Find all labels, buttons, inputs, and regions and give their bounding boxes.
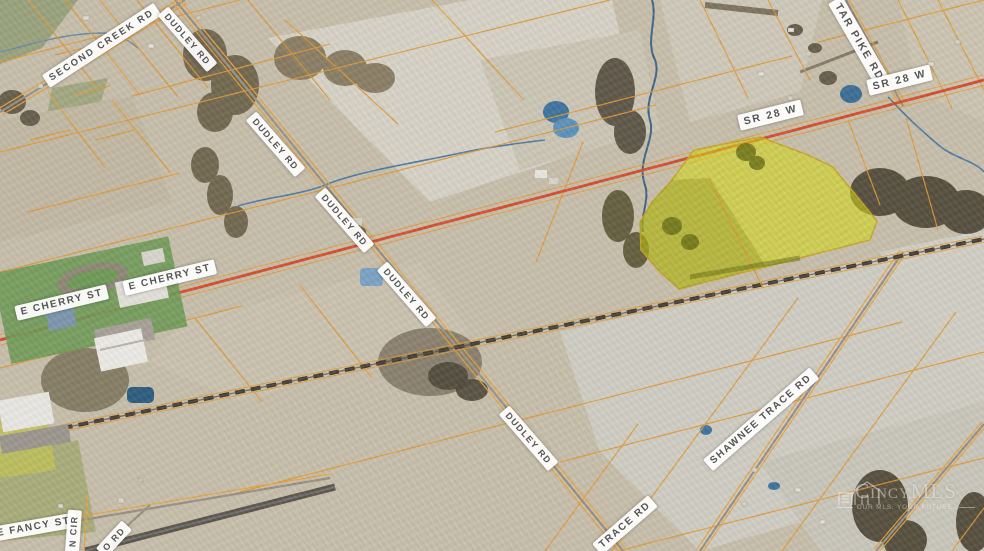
aerial-parcel-map: SECOND CREEK RD DUDLEY RD DUDLEY RD DUDL…: [0, 0, 984, 551]
road-label-n-cir: N CIR: [65, 510, 82, 551]
